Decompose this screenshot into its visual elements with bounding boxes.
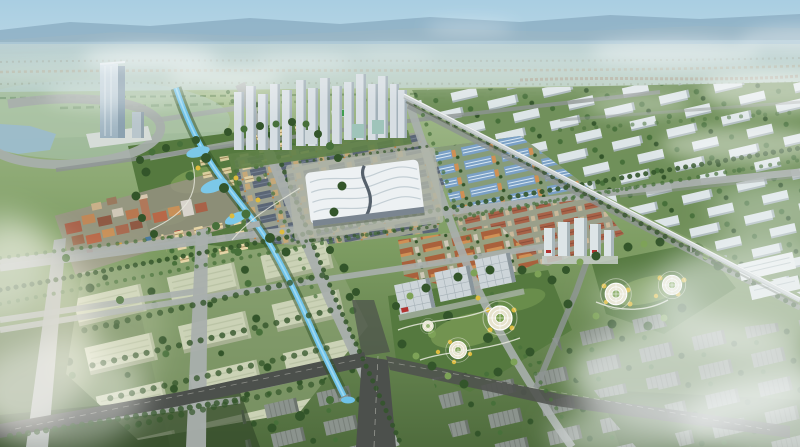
- city-masterplan-scene: Aerial master-plan rendering of a new ur…: [0, 0, 800, 447]
- aerial-rendering: Aerial master-plan rendering of a new ur…: [0, 0, 800, 447]
